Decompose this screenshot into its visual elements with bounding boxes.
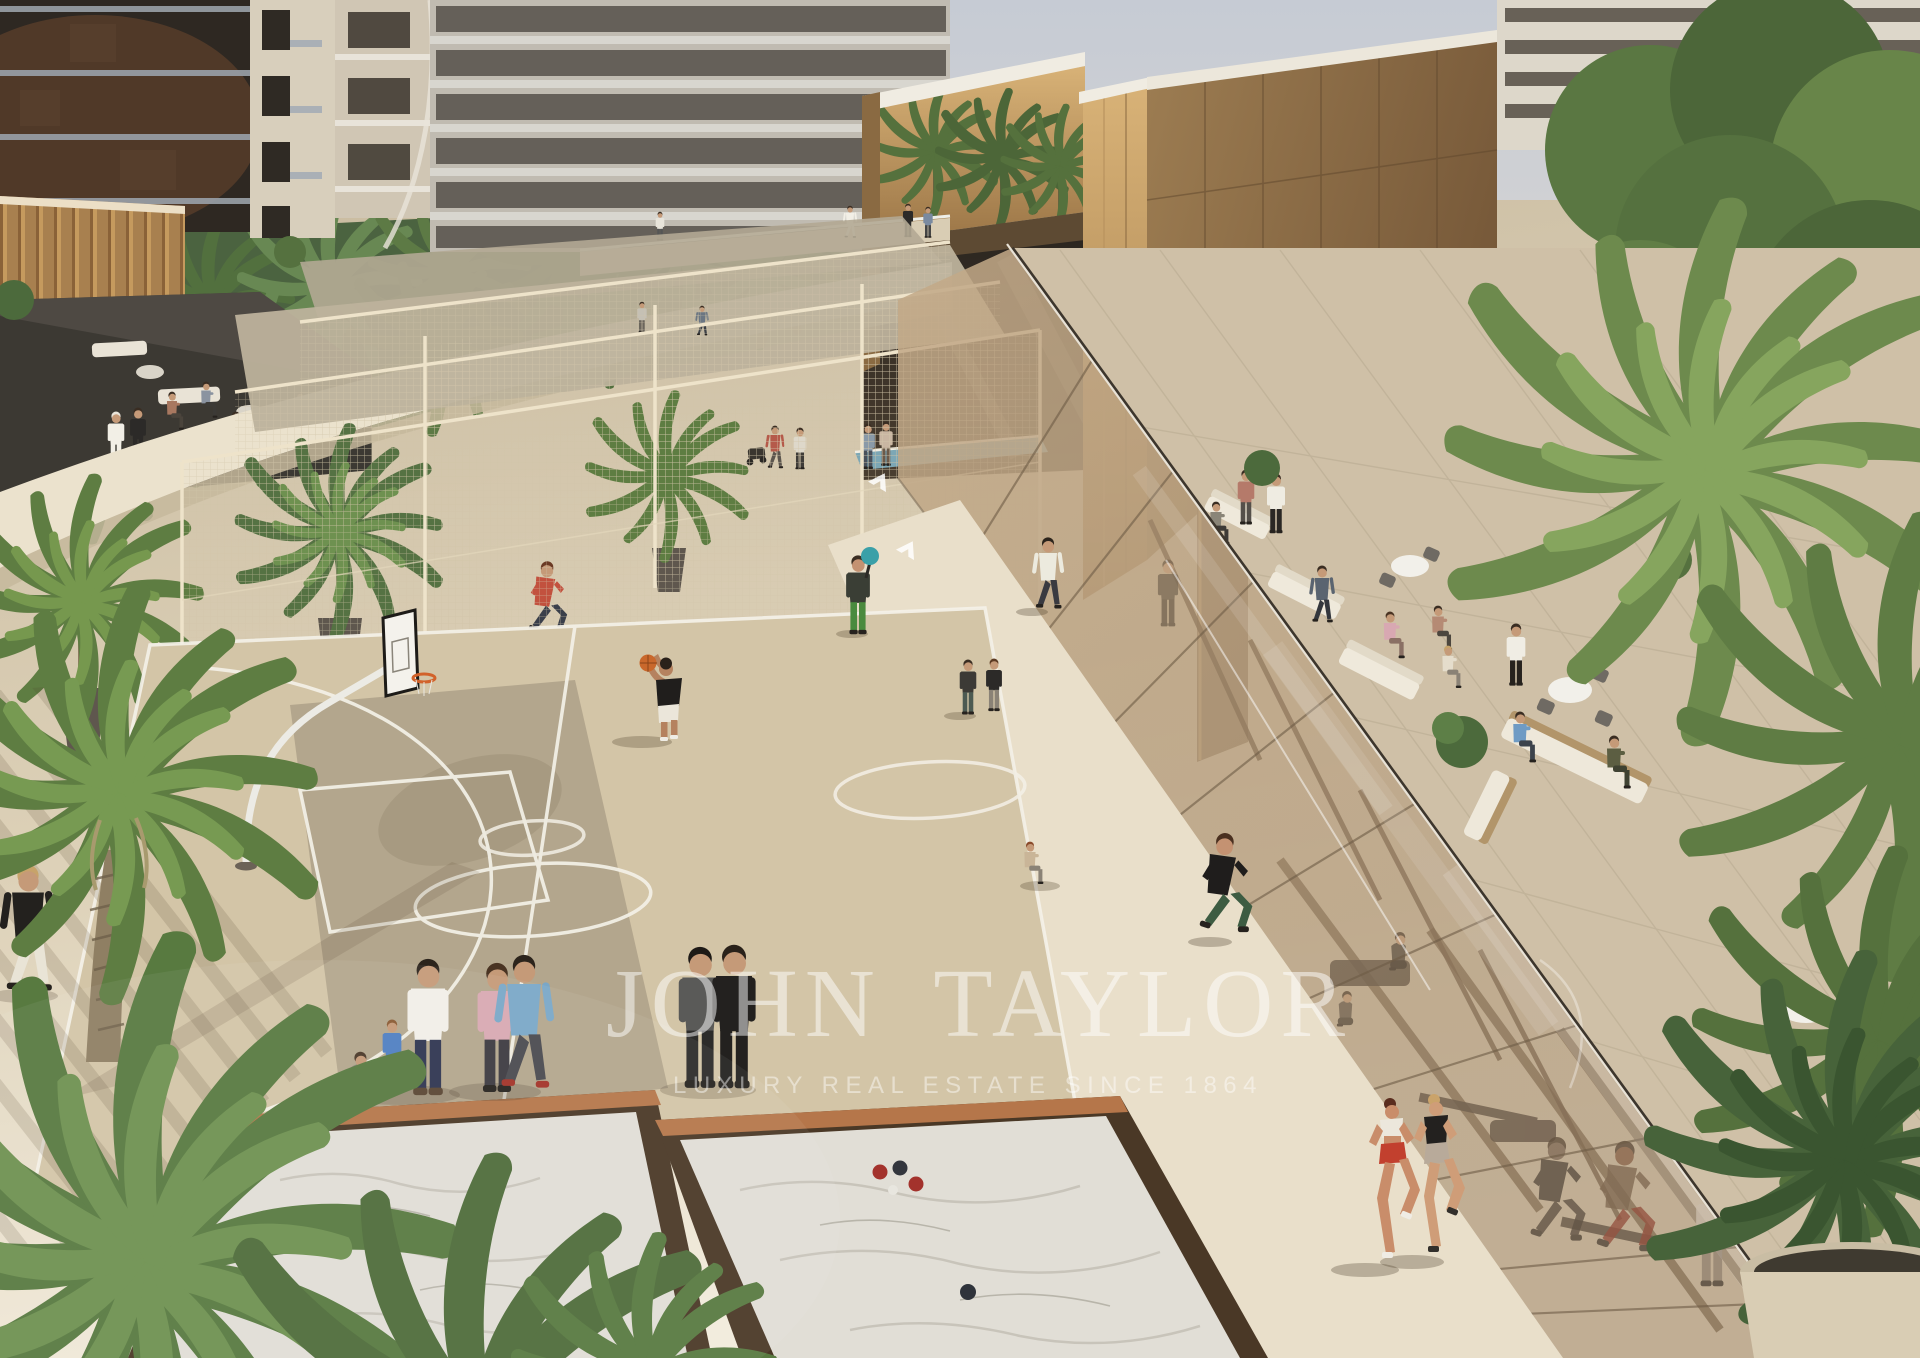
bocce-ball	[909, 1177, 924, 1192]
watermark-title: JOHN TAYLOR	[606, 948, 1352, 1059]
bocce-ball	[960, 1284, 976, 1300]
bocce-ball	[873, 1165, 888, 1180]
scene: 3	[0, 0, 1920, 1358]
bocce-ball	[893, 1161, 908, 1176]
rendering-canvas: 3	[0, 0, 1920, 1358]
bocce-jack	[888, 1185, 898, 1195]
watermark-tagline: LUXURY REAL ESTATE SINCE 1864	[673, 1072, 1263, 1100]
